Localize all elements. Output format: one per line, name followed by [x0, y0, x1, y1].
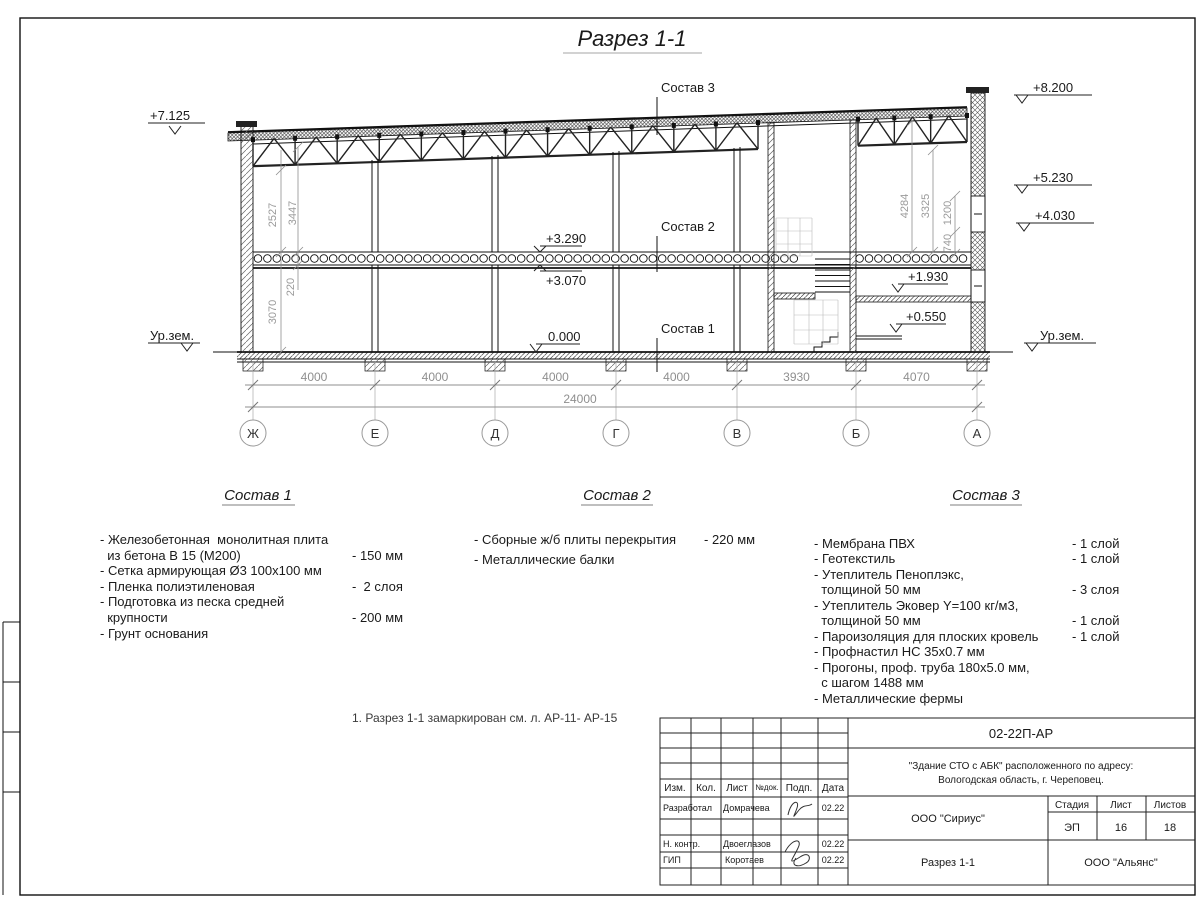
floor-slab — [253, 252, 971, 268]
svg-text:+4.030: +4.030 — [1035, 208, 1075, 223]
purlin-mark — [461, 130, 465, 135]
svg-text:+3.070: +3.070 — [546, 273, 586, 288]
level-8200: +8.200 — [1014, 80, 1092, 103]
dim-2527: 2527 — [267, 203, 279, 227]
truss-diagonal — [421, 133, 442, 161]
level-1930: +1.930 — [892, 269, 948, 292]
slab-void — [461, 255, 469, 263]
svg-text:- 1 слой: - 1 слой — [1072, 551, 1120, 566]
col-izm: Изм. — [664, 783, 685, 794]
slab-void — [940, 255, 948, 263]
stage-label: Стадия — [1055, 800, 1089, 811]
slab-void — [649, 255, 657, 263]
signature-gip — [785, 841, 809, 866]
axis-label: Ж — [247, 426, 259, 441]
dim-3070: 3070 — [267, 300, 279, 324]
slab-void — [339, 255, 347, 263]
bay-dimension: 3930 — [783, 370, 810, 384]
floor-plus-0550 — [856, 336, 902, 339]
date-developed: 02.22 — [822, 803, 845, 813]
slab-void — [282, 255, 290, 263]
slab-void — [508, 255, 516, 263]
slab-void — [395, 255, 403, 263]
svg-text:толщиной 50 мм: толщиной 50 мм — [814, 613, 921, 628]
slab-void — [423, 255, 431, 263]
section-drawing-canvas: Разрез 1-1 — [0, 0, 1200, 900]
slab-void — [715, 255, 723, 263]
role-developed: Разработал — [663, 803, 712, 813]
slab-void — [329, 255, 337, 263]
bay-dimension: 4000 — [663, 370, 690, 384]
callout-sostav3: Состав 3 — [661, 80, 715, 95]
sheet-label: Лист — [1110, 800, 1132, 811]
purlin-mark — [965, 113, 969, 118]
bay-dimension: 4000 — [542, 370, 569, 384]
drawing-note: 1. Разрез 1-1 замаркирован см. л. АР-11-… — [352, 711, 618, 725]
truss-bottom-chord — [858, 142, 967, 146]
slab-void — [517, 255, 525, 263]
purlin-mark — [756, 120, 760, 125]
drawing-name: Разрез 1-1 — [921, 857, 975, 869]
slab-void — [583, 255, 591, 263]
slab-void — [358, 255, 366, 263]
composition-1-title: Состав 1 — [224, 487, 292, 504]
svg-text:- 1 слой: - 1 слой — [1072, 613, 1120, 628]
composition-3-title: Состав 3 — [952, 487, 1020, 504]
signature-developed — [788, 802, 812, 816]
axis-label: В — [733, 426, 742, 441]
date-gip: 02.22 — [822, 855, 845, 865]
slab-void — [668, 255, 676, 263]
total-dimension: 24000 — [563, 392, 597, 406]
slab-void — [555, 255, 563, 263]
truss-diagonal — [337, 136, 358, 164]
bay-dimension: 4070 — [903, 370, 930, 384]
slab-void — [546, 255, 554, 263]
slab-void — [564, 255, 572, 263]
purlin-mark — [504, 129, 508, 134]
stair-flight-upper — [815, 259, 850, 292]
svg-text:- Профнастил НС 35х0.7 мм: - Профнастил НС 35х0.7 мм — [814, 644, 985, 659]
svg-text:Ур.зем.: Ур.зем. — [150, 328, 194, 343]
ground-slab — [237, 352, 990, 359]
purlin-mark — [588, 126, 592, 131]
slab-void — [499, 255, 507, 263]
slab-void — [405, 255, 413, 263]
svg-text:- 1 слой: - 1 слой — [1072, 629, 1120, 644]
ground-level-left: Ур.зем. — [148, 328, 200, 351]
svg-text:- 2 слоя: - 2 слоя — [352, 579, 403, 594]
slab-void — [724, 255, 732, 263]
drawing-sheet: Разрез 1-1 — [0, 0, 1200, 900]
slab-void — [320, 255, 328, 263]
axis-label: Г — [612, 426, 619, 441]
level-5230: +5.230 — [1014, 170, 1092, 193]
level-3290: +3.290 — [534, 231, 586, 252]
svg-text:толщиной 50 мм: толщиной 50 мм — [814, 582, 921, 597]
svg-text:- Сетка армирующая Ø3 100x100: - Сетка армирующая Ø3 100x100 мм — [100, 563, 322, 578]
slab-void — [658, 255, 666, 263]
slab-void — [884, 255, 892, 263]
svg-text:- 150 мм: - 150 мм — [352, 548, 403, 563]
col-podp: Подп. — [786, 783, 813, 794]
slab-void — [480, 255, 488, 263]
svg-text:- Сборные ж/б плиты перекрытия: - Сборные ж/б плиты перекрытия — [474, 532, 676, 547]
svg-text:- 220 мм: - 220 мм — [704, 532, 755, 547]
slab-void — [348, 255, 356, 263]
axis-label: Д — [491, 426, 500, 441]
purlin-mark — [251, 137, 255, 142]
svg-text:+1.930: +1.930 — [908, 269, 948, 284]
name-developed: Домрачева — [723, 803, 770, 813]
page-title: Разрез 1-1 — [577, 26, 686, 51]
slab-void — [865, 255, 873, 263]
title-block: Изм. Кол. Лист №док. Подп. Дата Разработ… — [660, 718, 1195, 885]
stair-landing — [774, 293, 815, 299]
col-kol: Кол. — [696, 783, 716, 794]
purlin-mark — [546, 127, 550, 132]
slab-void — [903, 255, 911, 263]
org-design: ООО "Сириус" — [911, 813, 985, 825]
truss-diagonal — [506, 130, 527, 158]
stairwell — [768, 120, 856, 352]
slab-void — [734, 255, 742, 263]
callout-sostav1: Состав 1 — [661, 321, 715, 336]
stage-value: ЭП — [1064, 822, 1080, 834]
purlin-mark — [856, 117, 860, 122]
slab-void — [705, 255, 713, 263]
slab-void — [922, 255, 930, 263]
svg-text:- Пленка полиэтиленовая: - Пленка полиэтиленовая — [100, 579, 255, 594]
slab-void — [311, 255, 319, 263]
svg-text:+5.230: +5.230 — [1033, 170, 1073, 185]
slab-void — [611, 255, 619, 263]
purlin-mark — [929, 114, 933, 119]
purlin-mark — [335, 134, 339, 139]
slab-void — [621, 255, 629, 263]
level-0550: +0.550 — [890, 309, 946, 332]
slab-void — [433, 255, 441, 263]
svg-text:+3.290: +3.290 — [546, 231, 586, 246]
truss-diagonal — [548, 128, 569, 156]
dim-1200: 1200 — [942, 201, 954, 225]
col-data: Дата — [822, 783, 845, 794]
truss-diagonal — [463, 131, 484, 159]
svg-text:- Геотекстиль: - Геотекстиль — [814, 551, 895, 566]
left-parapet-cap — [236, 121, 257, 127]
slab-void — [931, 255, 939, 263]
svg-text:с шагом 1488 мм: с шагом 1488 мм — [814, 675, 924, 690]
svg-text:- 1 слой: - 1 слой — [1072, 536, 1120, 551]
svg-text:- Грунт основания: - Грунт основания — [100, 626, 208, 641]
slab-void — [687, 255, 695, 263]
col-list: Лист — [726, 783, 748, 794]
bottom-dimension-chain: 40004000400040003930407024000ЖЕДГВБА — [240, 362, 990, 446]
slab-void — [630, 255, 638, 263]
slab-void — [912, 255, 920, 263]
composition-1: Состав 1 - Железобетонная монолитная пли… — [100, 487, 403, 641]
truss-diagonal — [590, 127, 611, 155]
slab-void — [442, 255, 450, 263]
svg-text:+0.550: +0.550 — [906, 309, 946, 324]
slab-void — [959, 255, 967, 263]
slab-void — [452, 255, 460, 263]
dim-3447: 3447 — [287, 201, 299, 225]
sheets-label: Листов — [1154, 800, 1187, 811]
sheets-total: 18 — [1164, 822, 1176, 834]
purlin-mark — [672, 123, 676, 128]
role-ncontrol: Н. контр. — [663, 839, 700, 849]
slab-void — [264, 255, 272, 263]
level-7125: +7.125 — [148, 108, 205, 134]
svg-text:Ур.зем.: Ур.зем. — [1040, 328, 1084, 343]
axis-label: Б — [852, 426, 861, 441]
svg-text:- Металлические балки: - Металлические балки — [474, 552, 614, 567]
slab-void — [376, 255, 384, 263]
composition-3: Состав 3 - Мембрана ПВХ- 1 слой - Геотек… — [814, 487, 1120, 706]
level-0000: 0.000 — [530, 329, 581, 352]
stair-flight-lower — [806, 332, 838, 352]
svg-text:крупности: крупности — [100, 610, 168, 625]
truss-diagonal — [253, 138, 274, 166]
composition-2-title: Состав 2 — [583, 487, 651, 504]
svg-text:- Утеплитель Эковер Y=100 кг/м: - Утеплитель Эковер Y=100 кг/м3, — [814, 598, 1018, 613]
doc-number: 02-22П-АР — [989, 726, 1053, 741]
slab-void — [875, 255, 883, 263]
foundation-pads — [243, 359, 987, 371]
svg-text:- Прогоны, проф. труба 180х5.0: - Прогоны, проф. труба 180х5.0 мм, — [814, 660, 1030, 675]
slab-void — [602, 255, 610, 263]
svg-text:+8.200: +8.200 — [1033, 80, 1073, 95]
purlin-mark — [630, 124, 634, 129]
name-gip: Коротаев — [725, 855, 764, 865]
right-parapet-cap — [966, 87, 989, 93]
project-name-line2: Вологодская область, г. Череповец. — [938, 774, 1104, 786]
dim-3325: 3325 — [920, 194, 932, 218]
svg-text:- Металлические фермы: - Металлические фермы — [814, 691, 963, 706]
purlin-mark — [892, 115, 896, 120]
slab-void — [527, 255, 535, 263]
svg-text:- Мембрана ПВХ: - Мембрана ПВХ — [814, 536, 915, 551]
dim-4284: 4284 — [899, 194, 911, 218]
slab-void — [574, 255, 582, 263]
slab-void — [640, 255, 648, 263]
right-wall — [966, 87, 989, 352]
slab-void — [470, 255, 478, 263]
composition-2: Состав 2 - Сборные ж/б плиты перекрытия-… — [474, 487, 755, 567]
callout-sostav2: Состав 2 — [661, 219, 715, 234]
svg-text:- Пароизоляция для плоских кро: - Пароизоляция для плоских кровель — [814, 629, 1039, 644]
bay-dimension: 4000 — [301, 370, 328, 384]
slab-void — [414, 255, 422, 263]
truss-diagonal — [632, 126, 653, 154]
axis-label: Е — [371, 426, 380, 441]
slab-void — [752, 255, 760, 263]
sheet-number: 16 — [1115, 822, 1127, 834]
slab-void — [696, 255, 704, 263]
svg-text:- Железобетонная монолитная п: - Железобетонная монолитная плита — [100, 532, 329, 547]
svg-text:+7.125: +7.125 — [150, 108, 190, 123]
name-ncontrol: Двоеглазов — [723, 839, 771, 849]
svg-text:- 3 слоя: - 3 слоя — [1072, 582, 1119, 597]
truss-diagonal — [379, 134, 400, 162]
left-wall — [241, 125, 253, 352]
bay-dimension: 4000 — [422, 370, 449, 384]
ground-level-right: Ур.зем. — [1024, 328, 1096, 351]
purlin-mark — [419, 131, 423, 136]
svg-text:- Утеплитель Пеноплэкс,: - Утеплитель Пеноплэкс, — [814, 567, 964, 582]
dim-220: 220 — [285, 278, 297, 296]
slab-void — [536, 255, 544, 263]
slab-void — [856, 255, 864, 263]
axis-label: А — [973, 426, 982, 441]
slab-void — [254, 255, 262, 263]
col-ndok: №док. — [755, 783, 778, 792]
svg-text:- Подготовка из песка средней: - Подготовка из песка средней — [100, 594, 284, 609]
org-client: ООО "Альянс" — [1084, 857, 1158, 869]
date-ncontrol: 02.22 — [822, 839, 845, 849]
slab-void — [743, 255, 751, 263]
purlin-mark — [714, 121, 718, 126]
svg-text:- 200 мм: - 200 мм — [352, 610, 403, 625]
slab-void — [367, 255, 375, 263]
slab-void — [489, 255, 497, 263]
svg-text:из бетона В 15 (М200): из бетона В 15 (М200) — [100, 548, 241, 563]
role-gip: ГИП — [663, 855, 681, 865]
slab-void — [593, 255, 601, 263]
svg-text:0.000: 0.000 — [548, 329, 581, 344]
project-name-line1: "Здание СТО с АБК" расположенного по адр… — [909, 761, 1134, 772]
slab-void — [677, 255, 685, 263]
floor-plus-1930 — [856, 296, 971, 302]
purlin-mark — [293, 136, 297, 141]
stair-window — [776, 218, 812, 256]
level-4030: +4.030 — [1016, 208, 1094, 231]
dim-740: 740 — [942, 234, 954, 252]
slab-void — [386, 255, 394, 263]
purlin-mark — [377, 133, 381, 138]
slab-void — [893, 255, 901, 263]
truss-diagonal — [674, 124, 695, 152]
